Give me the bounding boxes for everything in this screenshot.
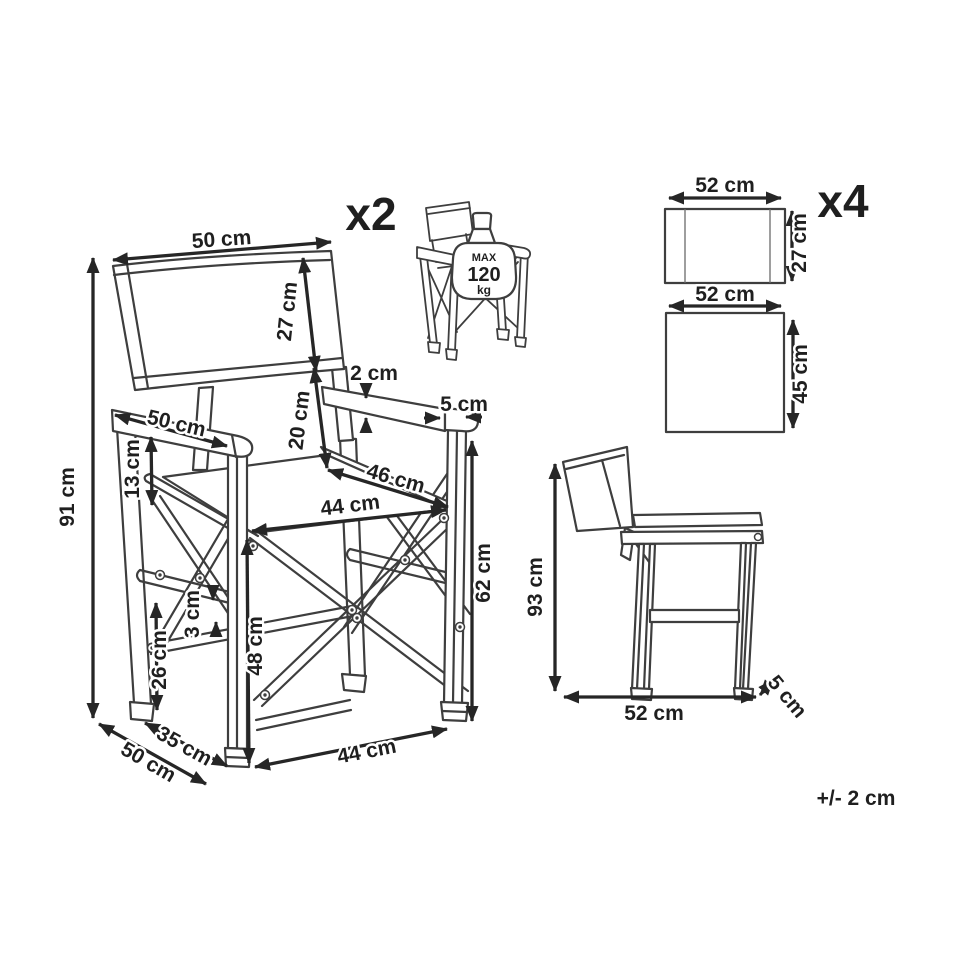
tolerance-note: +/- 2 cm	[817, 787, 896, 810]
max-load-chair-thumbnail: MAX 120 kg	[417, 202, 530, 360]
max-load-label-kg: kg	[477, 283, 491, 297]
dim-armrest-above-seat-label: 13 cm	[121, 439, 144, 499]
dim-armrest-end-label: 5 cm	[440, 393, 488, 416]
dim-back-gap-label: 20 cm	[285, 389, 315, 451]
dim-stretcher-height-label: 26 cm	[148, 630, 171, 690]
dim-back-width-label: 50 cm	[191, 226, 252, 253]
dim-rail-gap-label: 3 cm	[181, 590, 204, 638]
diagram-canvas: MAX 120 kg	[0, 0, 960, 960]
dim-back-gap-arrow	[314, 368, 327, 468]
dim-backrest-cover-height-label: 27 cm	[788, 213, 811, 273]
dim-side-thickness-label: 5 cm	[763, 671, 811, 722]
backrest-cover-drawing	[665, 209, 785, 283]
seat-cover-drawing	[666, 313, 784, 432]
dim-backrest-cover-width-label: 52 cm	[695, 174, 755, 197]
dim-seat-height-label: 48 cm	[244, 616, 267, 676]
dim-side-width-label: 52 cm	[624, 702, 684, 725]
dim-armrest-thickness-label: 2 cm	[350, 362, 398, 385]
dim-seat-cover-width-label: 52 cm	[695, 283, 755, 306]
side-view-chair-drawing	[563, 447, 763, 700]
dim-front-span-label: 44 cm	[335, 735, 398, 769]
chair-quantity-label: x2	[345, 188, 396, 240]
dim-seat-cover-height-label: 45 cm	[789, 344, 812, 404]
dim-side-height-label: 93 cm	[524, 557, 547, 617]
dimension-diagram: MAX 120 kg	[0, 0, 960, 960]
cover-quantity-label: x4	[817, 175, 869, 227]
dim-armrest-above-seat-arrow	[151, 437, 152, 505]
dim-overall-height-label: 91 cm	[56, 467, 79, 527]
dim-armrest-height-label: 62 cm	[472, 543, 495, 603]
max-load-label-max: MAX	[472, 252, 497, 264]
